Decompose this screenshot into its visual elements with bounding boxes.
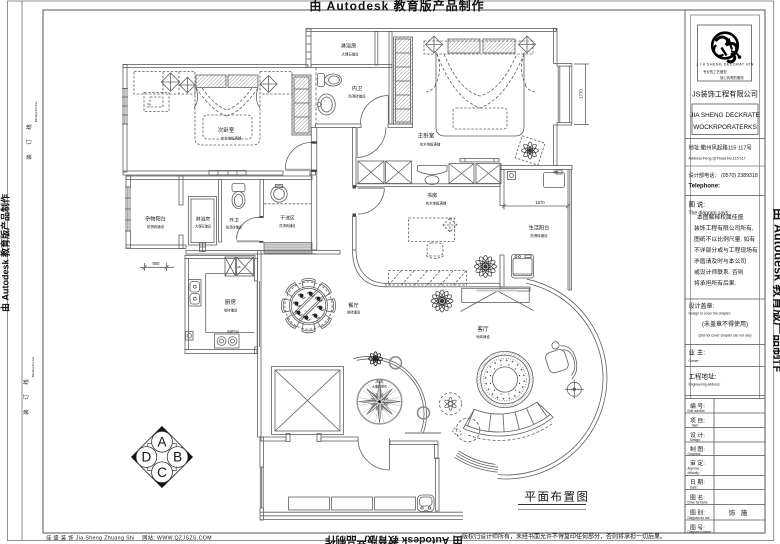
svg-text:地址:衢州凤起路115 117号: 地址:衢州凤起路115 117号 xyxy=(689,144,753,152)
svg-text:次卧室: 次卧室 xyxy=(218,126,235,134)
svg-text:淋浴房: 淋浴房 xyxy=(196,216,211,223)
svg-text:(Did not cover chapter can not: (Did not cover chapter can not use) xyxy=(699,334,752,338)
svg-text:Diagram do not: Diagram do not xyxy=(688,516,710,520)
svg-text:地砖铺设: 地砖铺设 xyxy=(476,334,490,339)
svg-text:内卫: 内卫 xyxy=(352,84,362,92)
svg-text:Approve: Approve xyxy=(688,467,700,471)
svg-text:厨房: 厨房 xyxy=(225,298,237,306)
svg-text:装 订 线: 装 订 线 xyxy=(25,120,33,160)
svg-text:Binding the line: Binding the line xyxy=(31,356,35,377)
svg-text:Design to cover the chapter:: Design to cover the chapter: xyxy=(689,312,731,316)
svg-text:Owner:: Owner: xyxy=(689,359,700,363)
svg-text:(未盖章不得使用): (未盖章不得使用) xyxy=(702,320,748,328)
svg-text:Graphics:: Graphics: xyxy=(688,452,702,456)
svg-text:放心负责的服务: 放心负责的服务 xyxy=(720,75,744,80)
svg-text:实木地板满铺: 实木地板满铺 xyxy=(426,201,447,206)
svg-text:装 订 线: 装 订 线 xyxy=(22,375,30,415)
svg-text:杂物阳台: 杂物阳台 xyxy=(145,215,166,223)
svg-text:1770: 1770 xyxy=(579,89,584,99)
svg-text:Diagram number: Diagram number xyxy=(688,530,713,534)
svg-text:客厅: 客厅 xyxy=(477,325,489,333)
svg-text:1670: 1670 xyxy=(535,200,545,205)
svg-text:由 Autodesk 教育版产品制作: 由 Autodesk 教育版产品制作 xyxy=(325,534,463,544)
svg-text:Item:: Item: xyxy=(692,424,699,428)
svg-text:餐厅: 餐厅 xyxy=(348,301,358,309)
svg-text:由 Autodesk 教育版产品制作: 由 Autodesk 教育版产品制作 xyxy=(309,0,484,13)
svg-text:WOCKRPORATERKS: WOCKRPORATERKS xyxy=(693,124,756,131)
svg-text:防滑砖铺设: 防滑砖铺设 xyxy=(531,233,549,238)
svg-text:本图解释权属佳盛: 本图解释权属佳盛 xyxy=(697,213,744,221)
svg-text:热水: 热水 xyxy=(553,170,559,174)
svg-text:防滑砖铺设: 防滑砖铺设 xyxy=(349,94,367,99)
svg-text:书房: 书房 xyxy=(427,191,437,199)
svg-text:防滑砖铺设: 防滑砖铺设 xyxy=(280,223,297,228)
svg-text:淋浴房: 淋浴房 xyxy=(341,42,357,50)
svg-text:图纸不以比例尺量. 如有: 图纸不以比例尺量. 如有 xyxy=(694,235,755,243)
svg-text:Telephone:: Telephone: xyxy=(689,184,721,190)
svg-text:实木地板满铺: 实木地板满铺 xyxy=(221,136,242,141)
svg-text:A8: A8 xyxy=(237,265,241,269)
svg-text:业 主:: 业 主: xyxy=(689,348,706,357)
svg-text:Drive for fame: Drive for fame xyxy=(688,501,708,505)
svg-text:大理石铺设: 大理石铺设 xyxy=(342,52,360,57)
svg-text:或设计师联系. 否则: 或设计师联系. 否则 xyxy=(694,268,744,276)
svg-text:800: 800 xyxy=(153,261,161,266)
svg-text:饰 施: 饰 施 xyxy=(729,508,750,517)
svg-text:天燃气灶: 天燃气灶 xyxy=(227,329,239,334)
svg-text:平面布置图: 平面布置图 xyxy=(525,491,590,504)
svg-text:JS装饰工程有限公司: JS装饰工程有限公司 xyxy=(692,90,758,99)
svg-text:玄关: 玄关 xyxy=(376,379,384,384)
svg-text:佳 盛 装 饰 Jia Sheng Zhuang Shi: 佳 盛 装 饰 Jia Sheng Zhuang Shi 网站: WWW.QZJ… xyxy=(46,534,212,542)
svg-text:D: D xyxy=(142,450,152,465)
svg-text:防滑砖铺设: 防滑砖铺设 xyxy=(147,224,165,229)
svg-text:大理石铺设: 大理石铺设 xyxy=(195,224,212,229)
svg-text:图 说:: 图 说: xyxy=(689,200,706,209)
svg-text:防滑砖铺设: 防滑砖铺设 xyxy=(226,225,243,230)
svg-text:Engineering address:: Engineering address: xyxy=(689,383,721,387)
svg-text:Binding the line: Binding the line xyxy=(34,101,38,122)
svg-text:Edit number: Edit number xyxy=(688,409,706,413)
svg-text:Address:Feng Qi Road No.115-11: Address:Feng Qi Road No.115-117 xyxy=(689,157,746,161)
svg-text:版权归设计师所有，未经书面允许不得复印任何部分，否则将承担一: 版权归设计师所有，未经书面允许不得复印任何部分，否则将承担一切后果。 xyxy=(462,533,666,541)
svg-text:A: A xyxy=(157,434,166,449)
svg-text:C: C xyxy=(157,465,167,480)
svg-text:工程地址:: 工程地址: xyxy=(689,372,717,381)
svg-text:设计部电话： (0570) 2389318: 设计部电话： (0570) 2389318 xyxy=(689,171,758,179)
svg-text:专业的工艺做您: 专业的工艺做您 xyxy=(703,69,727,74)
svg-text:officially:: officially: xyxy=(688,471,700,475)
svg-text:矛盾请及时与本公司: 矛盾请及时与本公司 xyxy=(694,257,746,265)
svg-text:大理石拼花: 大理石拼花 xyxy=(372,384,387,389)
svg-text:Design:: Design: xyxy=(690,438,701,442)
svg-text:干洗区: 干洗区 xyxy=(280,215,295,222)
svg-text:J I A SHENG DECORAT ION: J I A SHENG DECORAT ION xyxy=(696,63,754,67)
svg-text:实木地板满铺: 实木地板满铺 xyxy=(420,142,441,147)
svg-text:由 Autodesk 教育版产品制作: 由 Autodesk 教育版产品制作 xyxy=(0,194,11,312)
svg-text:地砖铺设: 地砖铺设 xyxy=(224,308,238,313)
svg-text:生活阳台: 生活阳台 xyxy=(529,224,550,232)
svg-text:B: B xyxy=(173,450,182,465)
svg-text:装饰工程有限公司所有,: 装饰工程有限公司所有, xyxy=(694,224,754,232)
svg-text:外卫: 外卫 xyxy=(229,217,239,224)
svg-text:主卧室: 主卧室 xyxy=(418,132,435,140)
svg-text:不详部分或与工程现场有: 不详部分或与工程现场有 xyxy=(694,246,758,254)
svg-text:将承担所有后果.: 将承担所有后果. xyxy=(694,279,737,287)
svg-text:JIA SHENG DECKRATE: JIA SHENG DECKRATE xyxy=(690,112,759,119)
svg-text:地砖铺设: 地砖铺设 xyxy=(347,310,361,315)
svg-text:Date:: Date: xyxy=(690,486,698,490)
svg-text:由 Autodesk 教育版产品制作: 由 Autodesk 教育版产品制作 xyxy=(772,208,780,372)
svg-text:设计盖章:: 设计盖章: xyxy=(689,302,715,310)
